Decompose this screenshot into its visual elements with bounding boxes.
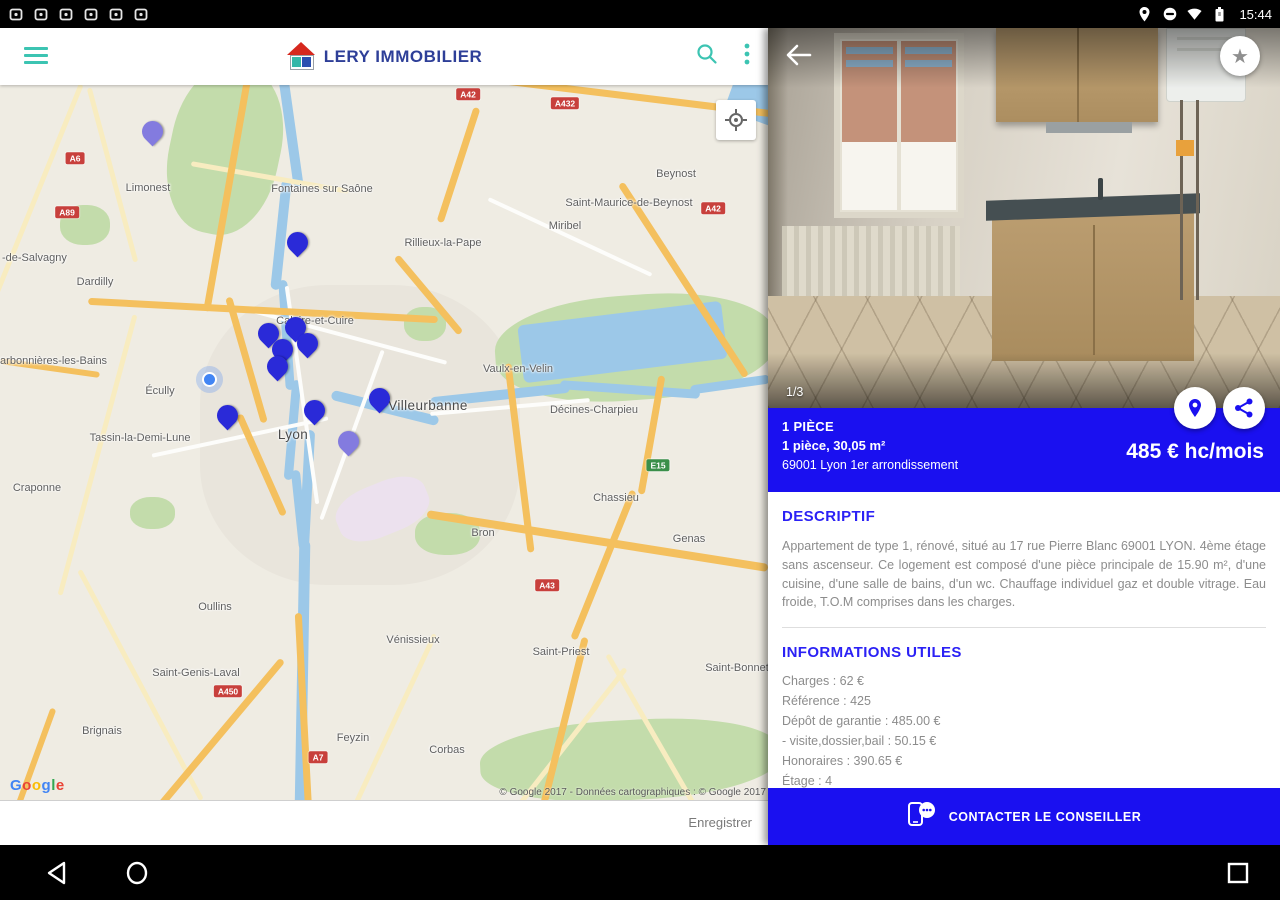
section-divider <box>782 627 1266 628</box>
road-badge: A6 <box>66 152 85 164</box>
my-location-button[interactable] <box>716 100 756 140</box>
back-arrow-icon[interactable] <box>786 42 812 73</box>
map-label: Fontaines sur Saône <box>271 183 373 195</box>
google-logo: Google <box>10 777 65 794</box>
favorite-star-button[interactable]: ★ <box>1220 36 1260 76</box>
overflow-menu-icon[interactable] <box>744 43 750 70</box>
calendar-icon <box>108 7 123 22</box>
app-title: LERY IMMOBILIER <box>324 47 483 67</box>
map-label: Tassin-la-Demi-Lune <box>90 432 191 444</box>
map-label: Oullins <box>198 601 232 613</box>
map-label: Feyzin <box>337 732 369 744</box>
map-panel: LERY IMMOBILIER LimonestFontaines sur Sa… <box>0 28 768 845</box>
dnd-icon <box>1162 7 1177 22</box>
map-label: Genas <box>673 533 705 545</box>
contact-chat-icon <box>907 801 937 832</box>
map-label: Craponne <box>13 482 61 494</box>
infos-list: Charges : 62 €Référence : 425Dépôt de ga… <box>782 671 1266 788</box>
road-badge: A432 <box>551 97 579 109</box>
property-pin[interactable] <box>283 228 313 258</box>
map-label: Rillieux-la-Pape <box>404 237 481 249</box>
property-pin[interactable] <box>138 117 168 147</box>
map-label: Villeurbanne <box>388 398 468 413</box>
map-label: Saint-Maurice-de-Beynost <box>565 197 692 209</box>
map-label: Miribel <box>549 220 581 232</box>
screenshot-icon <box>33 7 48 22</box>
road-badge: A450 <box>214 685 242 697</box>
app-toolbar: LERY IMMOBILIER <box>0 28 768 85</box>
map-label: -de-Salvagny <box>2 252 67 264</box>
app-notification-icon <box>133 7 148 22</box>
road-badge: A42 <box>701 202 725 214</box>
road-badge: A43 <box>535 579 559 591</box>
infos-title: INFORMATIONS UTILES <box>782 644 1266 661</box>
property-detail-panel: ★ 1/3 1 PIÈCE 1 pièce, 30,05 m² 69001 Ly… <box>768 28 1280 845</box>
road-badge: A42 <box>456 88 480 100</box>
map-label: Charbonnières-les-Bains <box>0 355 107 367</box>
contact-advisor-button[interactable]: CONTACTER LE CONSEILLER <box>768 788 1280 845</box>
info-line: Étage : 4 <box>782 771 1266 788</box>
status-bar: 15:44 <box>0 0 1280 28</box>
map-label: Chassieu <box>593 492 639 504</box>
road-badge: E15 <box>646 459 669 471</box>
map-label: Décines-Charpieu <box>550 404 638 416</box>
map-label: Corbas <box>429 744 464 756</box>
detail-scroll-area[interactable]: DESCRIPTIF Appartement de type 1, rénové… <box>768 492 1280 788</box>
bottom-strip: Enregistrer <box>0 800 768 846</box>
info-line: Référence : 425 <box>782 691 1266 711</box>
road-badge: A7 <box>309 751 328 763</box>
my-location-dot <box>202 372 217 387</box>
map-label: Saint-Bonnet <box>705 662 768 674</box>
info-line: - visite,dossier,bail : 50.15 € <box>782 731 1266 751</box>
property-price: 485 € hc/mois <box>1126 440 1264 464</box>
map-label: Saint-Priest <box>533 646 590 658</box>
map-label: Bron <box>471 527 494 539</box>
app-brand: LERY IMMOBILIER <box>0 28 768 85</box>
nav-recents-button[interactable] <box>1224 859 1252 887</box>
map-label: Limonest <box>126 182 171 194</box>
device-icon <box>83 7 98 22</box>
share-button[interactable] <box>1223 387 1265 429</box>
battery-icon <box>1212 7 1227 22</box>
save-button[interactable]: Enregistrer <box>688 815 752 830</box>
wifi-icon <box>1187 7 1202 22</box>
photo-counter: 1/3 <box>786 385 803 399</box>
property-photo[interactable]: ★ 1/3 <box>768 28 1280 408</box>
info-line: Honoraires : 390.65 € <box>782 751 1266 771</box>
map-label: Lyon <box>278 427 308 442</box>
map-label: Dardilly <box>77 276 114 288</box>
photo-kitchen-unit <box>992 213 1194 361</box>
alarm-icon <box>8 7 23 22</box>
show-on-map-button[interactable] <box>1174 387 1216 429</box>
map-attribution: © Google 2017 - Données cartographiques … <box>499 787 766 798</box>
map-label: Écully <box>145 385 174 397</box>
nav-home-button[interactable] <box>123 859 151 887</box>
search-icon[interactable] <box>696 43 718 70</box>
map-label: Saint-Genis-Laval <box>152 667 239 679</box>
agency-logo-icon <box>286 42 316 72</box>
gallery-icon <box>58 7 73 22</box>
clock: 15:44 <box>1239 7 1272 22</box>
map-label: Brignais <box>82 725 122 737</box>
map-label: Vaulx-en-Velin <box>483 363 553 375</box>
descriptif-title: DESCRIPTIF <box>782 508 1266 525</box>
map-label: Beynost <box>656 168 696 180</box>
google-map[interactable]: LimonestFontaines sur SaôneBeynostSaint-… <box>0 85 768 800</box>
info-line: Dépôt de garantie : 485.00 € <box>782 711 1266 731</box>
descriptif-body: Appartement de type 1, rénové, situé au … <box>782 537 1266 612</box>
road-badge: A89 <box>55 206 79 218</box>
contact-label: CONTACTER LE CONSEILLER <box>949 810 1142 824</box>
nav-back-button[interactable] <box>42 859 70 887</box>
info-line: Charges : 62 € <box>782 671 1266 691</box>
location-icon <box>1137 7 1152 22</box>
map-label: Vénissieux <box>386 634 439 646</box>
android-nav-bar <box>0 845 1280 900</box>
